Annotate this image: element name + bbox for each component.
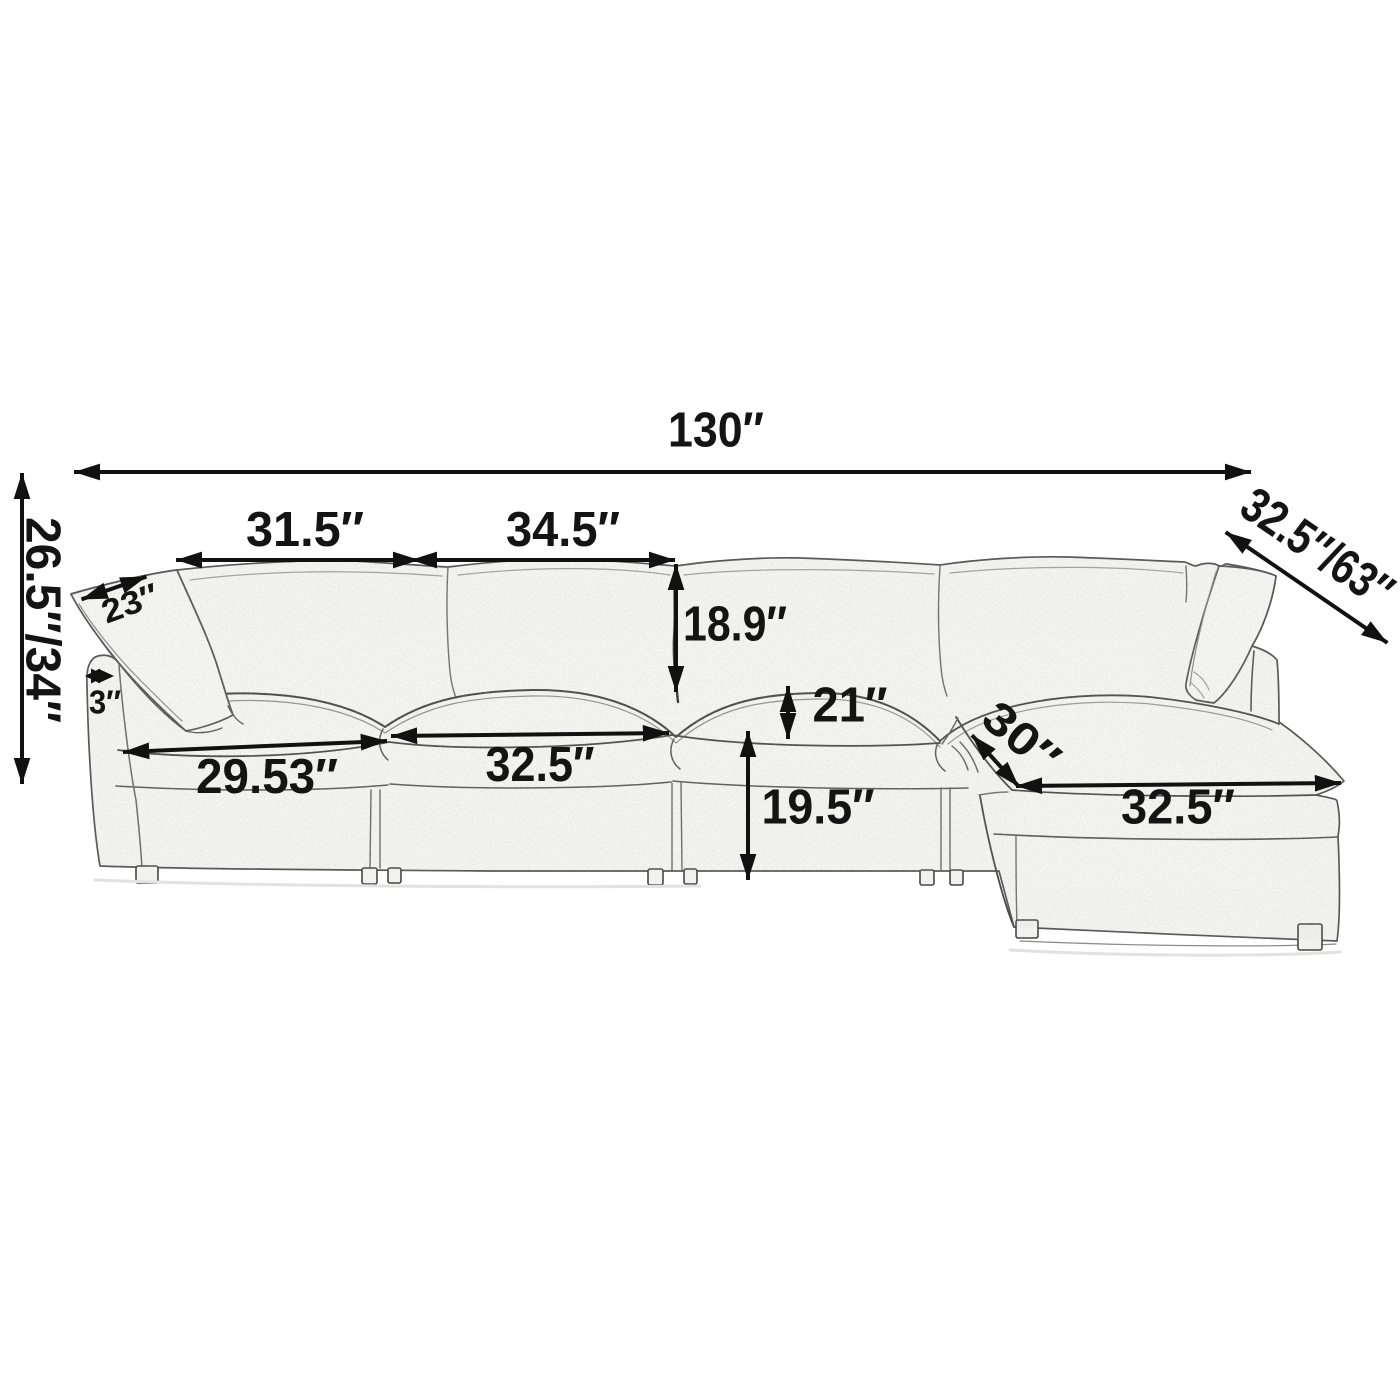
svg-text:130′′: 130′′	[668, 404, 764, 458]
svg-text:26.5′′/34′′: 26.5′′/34′′	[16, 517, 70, 723]
svg-text:18.9′′: 18.9′′	[683, 598, 787, 652]
svg-text:29.53′′: 29.53′′	[196, 750, 338, 804]
svg-text:3′′: 3′′	[89, 684, 121, 721]
svg-text:31.5′′: 31.5′′	[246, 503, 364, 557]
svg-text:34.5′′: 34.5′′	[506, 503, 620, 557]
svg-text:19.5′′: 19.5′′	[762, 781, 875, 835]
svg-text:32.5′′: 32.5′′	[486, 738, 595, 792]
svg-text:32.5′′: 32.5′′	[1121, 781, 1235, 835]
svg-text:21′′: 21′′	[813, 679, 888, 733]
